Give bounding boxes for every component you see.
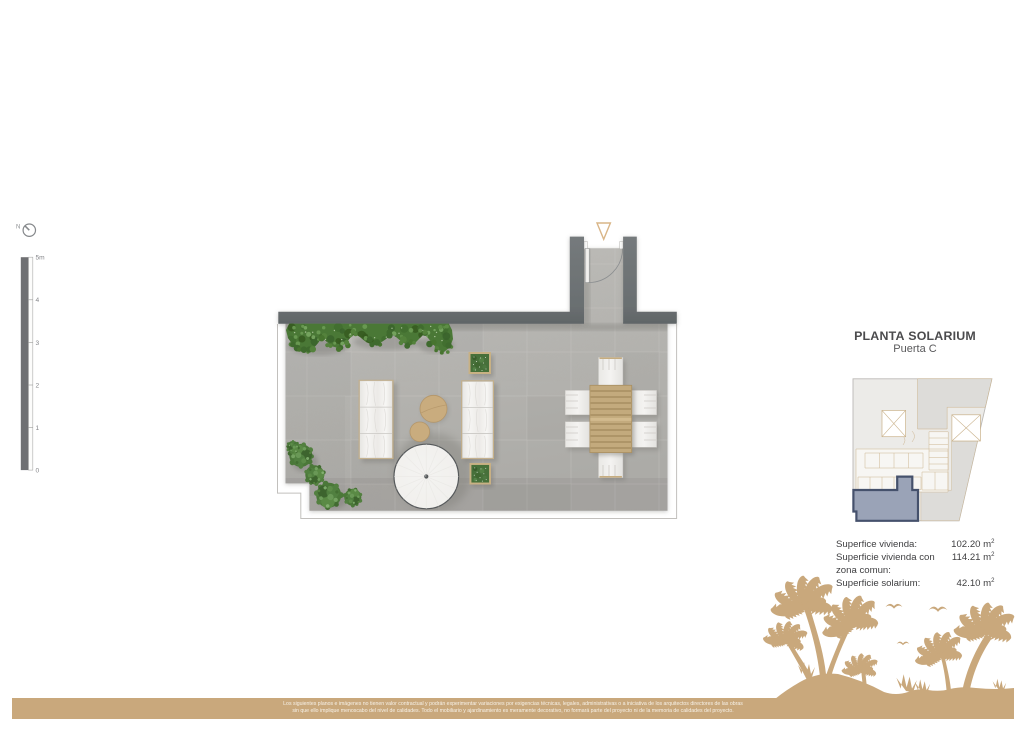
svg-text:3: 3 xyxy=(36,340,40,347)
svg-text:0: 0 xyxy=(36,467,40,474)
svg-text:N: N xyxy=(16,225,20,231)
svg-text:2: 2 xyxy=(36,382,40,389)
svg-text:5m: 5m xyxy=(36,255,46,262)
svg-text:1: 1 xyxy=(36,425,40,432)
svg-text:4: 4 xyxy=(36,297,40,304)
